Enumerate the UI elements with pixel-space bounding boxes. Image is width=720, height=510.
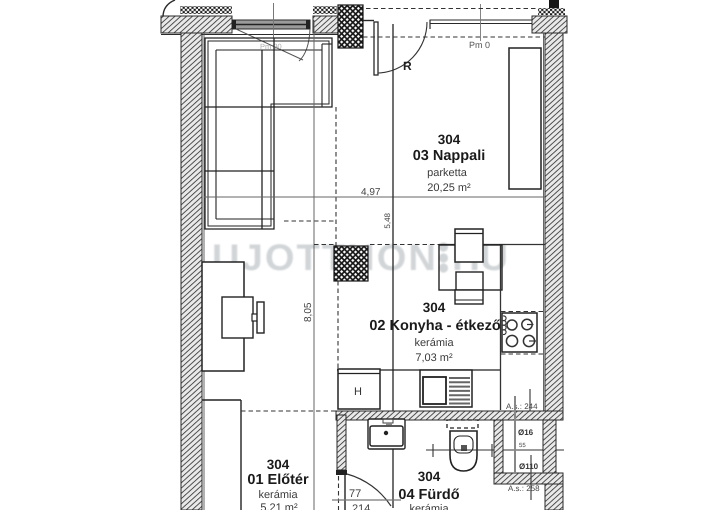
- svg-text:4,97: 4,97: [361, 187, 381, 198]
- svg-text:304: 304: [418, 469, 441, 484]
- svg-text:kerámia: kerámia: [409, 503, 449, 510]
- svg-text:Ø16: Ø16: [518, 428, 534, 437]
- svg-text:03 Nappali: 03 Nappali: [413, 148, 486, 164]
- svg-text:7,03 m²: 7,03 m²: [415, 352, 453, 364]
- svg-text:parketta: parketta: [427, 167, 468, 179]
- svg-text:214: 214: [352, 503, 370, 510]
- svg-text:77: 77: [349, 488, 361, 500]
- svg-text:UJOTTHON: UJOTTHON: [212, 237, 438, 278]
- svg-text:Pm 0: Pm 0: [469, 40, 490, 50]
- svg-text:R: R: [403, 59, 412, 73]
- svg-text:04 Fürdő: 04 Fürdő: [398, 487, 459, 503]
- svg-text:304: 304: [267, 457, 290, 472]
- svg-text:304: 304: [423, 300, 446, 315]
- svg-text:20,25 m²: 20,25 m²: [427, 182, 471, 194]
- svg-text:A.s.: 258: A.s.: 258: [508, 484, 540, 493]
- svg-text:5,21 m²: 5,21 m²: [260, 502, 298, 510]
- svg-text:kerámia: kerámia: [258, 489, 298, 501]
- svg-text:55: 55: [519, 442, 526, 449]
- svg-text:Ø110: Ø110: [519, 462, 539, 471]
- svg-text:H: H: [354, 386, 362, 398]
- svg-text:02 Konyha - étkező: 02 Konyha - étkező: [369, 318, 500, 334]
- svg-text:A.s.: 244: A.s.: 244: [506, 402, 538, 411]
- svg-text:8,05: 8,05: [303, 302, 314, 322]
- svg-text:01 Előtér: 01 Előtér: [247, 472, 309, 488]
- svg-text:304: 304: [438, 132, 461, 147]
- svg-text:kerámia: kerámia: [414, 337, 454, 349]
- svg-text:5,48: 5,48: [383, 212, 392, 228]
